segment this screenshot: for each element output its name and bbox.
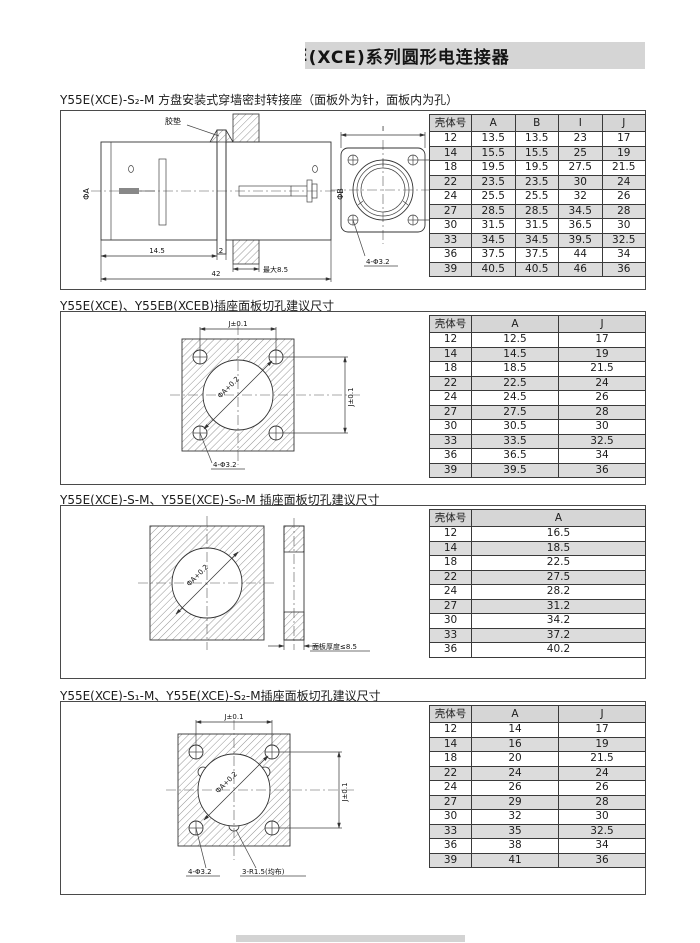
table-cell: 39 [430,853,472,868]
table-cell: 31.5 [515,219,559,234]
table-cell: 14 [430,541,472,556]
table-cell: 27 [430,795,472,810]
table-row: 121417 [430,723,646,738]
table-cell: 32.5 [559,824,646,839]
table-cell: 33 [430,824,472,839]
table-cell: 24 [559,376,646,391]
table-cell: 28 [602,204,646,219]
panel-cutout-drawing: J±0.1 J±0.1 ΦA+0.2 4-Φ3.2 3-R1.5(均布) [116,708,446,886]
table-cell: 24 [472,766,559,781]
table-row: 2227.5 [430,570,646,585]
gasket-label: 胶垫 [165,116,181,126]
dimension-table: 壳体号ABIJ1213.513.523171415.515.525191819.… [429,114,646,277]
table-cell: 33.5 [472,434,559,449]
table-cell: 30 [430,219,472,234]
dim-j-top: J±0.1 [227,320,247,328]
table-cell: 26 [559,781,646,796]
table-cell: 18 [430,362,472,377]
table-cell: 30 [559,420,646,435]
panel-cutout-drawing: J±0.1 J±0.1 ΦA+0.2 4-Φ3.2 [116,317,436,479]
dim-2: 2 [219,247,223,255]
column-header: A [472,115,516,132]
column-header: B [515,115,559,132]
section3-table: 壳体号A1216.51418.51822.52227.52428.22731.2… [429,509,646,658]
table-cell: 35 [472,824,559,839]
table-cell: 18 [430,556,472,571]
column-header: A [472,316,559,333]
table-cell: 12 [430,132,472,147]
section1-title: Y55E(XCE)-S₂-M 方盘安装式穿墙密封转接座（面板外为针，面板内为孔） [60,91,458,108]
table-row: 2425.525.53226 [430,190,646,205]
table-header-row: 壳体号AJ [430,316,646,333]
table-cell: 34 [559,839,646,854]
dim-42: 42 [212,270,221,278]
table-cell: 34.2 [472,614,646,629]
notch-label: 3-R1.5(均布) [242,867,285,876]
section4-box: J±0.1 J±0.1 ΦA+0.2 4-Φ3.2 3-R1.5(均布) 壳体号… [60,701,646,895]
table-row: 3637.537.54434 [430,248,646,263]
column-header: 壳体号 [430,316,472,333]
table-cell: 28.5 [515,204,559,219]
table-row: 3034.2 [430,614,646,629]
table-cell: 12.5 [472,333,559,348]
table-cell: 14 [430,347,472,362]
table-cell: 36 [602,262,646,277]
table-cell: 33 [430,628,472,643]
table-cell: 16 [472,737,559,752]
table-cell: 18.5 [472,362,559,377]
table-cell: 13.5 [472,132,516,147]
table-row: 3333.532.5 [430,434,646,449]
section1-box: 胶垫 ΦA ΦB 14.5 2 最大8.5 42 [60,110,646,290]
dim-j-top: J±0.1 [223,713,243,721]
table-cell: 36 [430,839,472,854]
table-row: 1212.517 [430,333,646,348]
table-cell: 19 [559,737,646,752]
table-cell: 26 [472,781,559,796]
table-cell: 16.5 [472,527,646,542]
table-row: 2223.523.53024 [430,175,646,190]
table-cell: 23 [559,132,603,147]
column-header: A [472,510,646,527]
table-cell: 34 [602,248,646,263]
table-row: 2428.2 [430,585,646,600]
table-row: 394136 [430,853,646,868]
table-row: 3939.536 [430,463,646,478]
page-header-bar: E (XCE)系列圆形电连接器 [305,42,645,69]
table-row: 3636.534 [430,449,646,464]
table-cell: 32.5 [559,434,646,449]
table-cell: 12 [430,527,472,542]
dim-j-right: J±0.1 [347,387,355,407]
table-cell: 30 [430,810,472,825]
table-cell: 26 [602,190,646,205]
dim-max-8-5: 最大8.5 [263,265,288,274]
table-cell: 33 [430,434,472,449]
dimension-table: 壳体号AJ121417141619182021.5222424242626272… [429,705,646,868]
table-cell: 22.5 [472,376,559,391]
table-cell: 32 [559,190,603,205]
table-row: 1822.5 [430,556,646,571]
table-cell: 39 [430,262,472,277]
dimension-table: 壳体号A1216.51418.51822.52227.52428.22731.2… [429,509,646,658]
column-header: J [559,316,646,333]
table-cell: 25 [559,146,603,161]
table-cell: 14 [472,723,559,738]
table-cell: 31.5 [472,219,516,234]
table-cell: 27.5 [472,570,646,585]
table-row: 3030.530 [430,420,646,435]
column-header: J [559,706,646,723]
table-cell: 40.5 [515,262,559,277]
table-cell: 25.5 [472,190,516,205]
table-cell: 41 [472,853,559,868]
table-cell: 37.2 [472,628,646,643]
dim-i-label: I [382,125,384,133]
table-row: 1414.519 [430,347,646,362]
table-row: 363834 [430,839,646,854]
table-row: 182021.5 [430,752,646,767]
table-cell: 28.2 [472,585,646,600]
table-cell: 40.5 [472,262,516,277]
table-cell: 36 [430,643,472,658]
table-cell: 24 [430,781,472,796]
table-cell: 18.5 [472,541,646,556]
table-row: 1818.521.5 [430,362,646,377]
table-row: 2727.528 [430,405,646,420]
table-row: 3031.531.536.530 [430,219,646,234]
table-cell: 17 [559,333,646,348]
dimension-table: 壳体号AJ1212.5171414.5191818.521.52222.5242… [429,315,646,478]
table-header-row: 壳体号ABIJ [430,115,646,132]
table-cell: 36 [430,248,472,263]
table-cell: 18 [430,752,472,767]
table-cell: 22 [430,570,472,585]
table-cell: 24 [430,585,472,600]
holes-label: 4-Φ3.2 [213,461,237,469]
table-row: 2731.2 [430,599,646,614]
table-cell: 28 [559,405,646,420]
table-cell: 44 [559,248,603,263]
table-cell: 27 [430,204,472,219]
table-cell: 27 [430,405,472,420]
table-cell: 19 [559,347,646,362]
section2-table: 壳体号AJ1212.5171414.5191818.521.52222.5242… [429,315,646,478]
table-cell: 29 [472,795,559,810]
table-cell: 12 [430,723,472,738]
section1-table: 壳体号ABIJ1213.513.523171415.515.525191819.… [429,114,646,277]
dim-j-right: J±0.1 [341,782,349,802]
table-cell: 30 [430,420,472,435]
table-cell: 32.5 [602,233,646,248]
column-header: I [559,115,603,132]
table-cell: 14 [430,146,472,161]
table-row: 2728.528.534.528 [430,204,646,219]
table-cell: 39.5 [559,233,603,248]
table-cell: 34 [559,449,646,464]
table-cell: 38 [472,839,559,854]
table-header-row: 壳体号A [430,510,646,527]
table-cell: 15.5 [515,146,559,161]
table-cell: 21.5 [559,752,646,767]
column-header: 壳体号 [430,115,472,132]
table-cell: 39.5 [472,463,559,478]
table-cell: 30 [430,614,472,629]
column-header: 壳体号 [430,706,472,723]
table-cell: 14 [430,737,472,752]
column-header: 壳体号 [430,510,472,527]
table-cell: 19.5 [472,161,516,176]
table-cell: 40.2 [472,643,646,658]
table-cell: 34.5 [515,233,559,248]
table-row: 2424.526 [430,391,646,406]
table-cell: 27 [430,599,472,614]
table-cell: 46 [559,262,603,277]
table-cell: 36 [559,853,646,868]
holes-label: 4-Φ3.2 [366,258,390,266]
table-cell: 24 [602,175,646,190]
table-cell: 30 [602,219,646,234]
table-cell: 19.5 [515,161,559,176]
table-row: 272928 [430,795,646,810]
table-row: 1418.5 [430,541,646,556]
table-row: 1415.515.52519 [430,146,646,161]
table-cell: 36 [559,463,646,478]
table-row: 3337.2 [430,628,646,643]
table-cell: 13.5 [515,132,559,147]
table-cell: 24 [430,391,472,406]
table-row: 3940.540.54636 [430,262,646,277]
table-cell: 32 [472,810,559,825]
table-cell: 24 [430,190,472,205]
table-cell: 37.5 [515,248,559,263]
section2-box: J±0.1 J±0.1 ΦA+0.2 4-Φ3.2 壳体号AJ1212.5171… [60,311,646,485]
dim-14-5: 14.5 [149,247,165,255]
table-cell: 24.5 [472,391,559,406]
table-cell: 22 [430,376,472,391]
section4-table: 壳体号AJ121417141619182021.5222424242626272… [429,705,646,868]
table-cell: 18 [430,161,472,176]
column-header: A [472,706,559,723]
holes-label: 4-Φ3.2 [188,868,212,876]
table-cell: 28 [559,795,646,810]
table-cell: 25.5 [515,190,559,205]
adapter-drawing: 胶垫 ΦA ΦB 14.5 2 最大8.5 42 [69,114,439,284]
table-cell: 12 [430,333,472,348]
table-cell: 15.5 [472,146,516,161]
panel-cutout-drawing: ΦA+0.2 面板厚度≤8.5 [116,512,446,670]
table-row: 303230 [430,810,646,825]
table-cell: 36.5 [559,219,603,234]
table-row: 141619 [430,737,646,752]
table-cell: 26 [559,391,646,406]
table-cell: 30 [559,175,603,190]
table-cell: 33 [430,233,472,248]
table-row: 1819.519.527.521.5 [430,161,646,176]
table-cell: 30.5 [472,420,559,435]
table-cell: 19 [602,146,646,161]
page-title: (XCE)系列圆形电连接器 [309,43,510,68]
table-row: 242626 [430,781,646,796]
table-cell: 24 [559,766,646,781]
table-cell: 14.5 [472,347,559,362]
table-header-row: 壳体号AJ [430,706,646,723]
table-cell: 27.5 [472,405,559,420]
table-cell: 22.5 [472,556,646,571]
table-cell: 21.5 [602,161,646,176]
table-row: 333532.5 [430,824,646,839]
column-header: J [602,115,646,132]
table-row: 3334.534.539.532.5 [430,233,646,248]
table-cell: 28.5 [472,204,516,219]
table-cell: 34.5 [559,204,603,219]
footer-bar [236,935,465,942]
section3-box: ΦA+0.2 面板厚度≤8.5 壳体号A1216.51418.51822.522… [60,505,646,679]
table-cell: 34.5 [472,233,516,248]
table-row: 1213.513.52317 [430,132,646,147]
table-cell: 27.5 [559,161,603,176]
table-cell: 22 [430,175,472,190]
table-row: 3640.2 [430,643,646,658]
panel-thickness-label: 面板厚度≤8.5 [312,642,357,651]
table-row: 222424 [430,766,646,781]
table-cell: 36 [430,449,472,464]
table-cell: 17 [559,723,646,738]
table-cell: 30 [559,810,646,825]
table-row: 2222.524 [430,376,646,391]
datasheet-page: E (XCE)系列圆形电连接器 Y55E(XCE)-S₂-M 方盘安装式穿墙密封… [0,0,700,943]
table-cell: 31.2 [472,599,646,614]
table-cell: 23.5 [515,175,559,190]
table-cell: 23.5 [472,175,516,190]
table-row: 1216.5 [430,527,646,542]
table-cell: 17 [602,132,646,147]
table-cell: 36.5 [472,449,559,464]
table-cell: 22 [430,766,472,781]
table-cell: 37.5 [472,248,516,263]
table-cell: 20 [472,752,559,767]
table-cell: 39 [430,463,472,478]
phi-a-label: ΦA [82,188,91,200]
table-cell: 21.5 [559,362,646,377]
